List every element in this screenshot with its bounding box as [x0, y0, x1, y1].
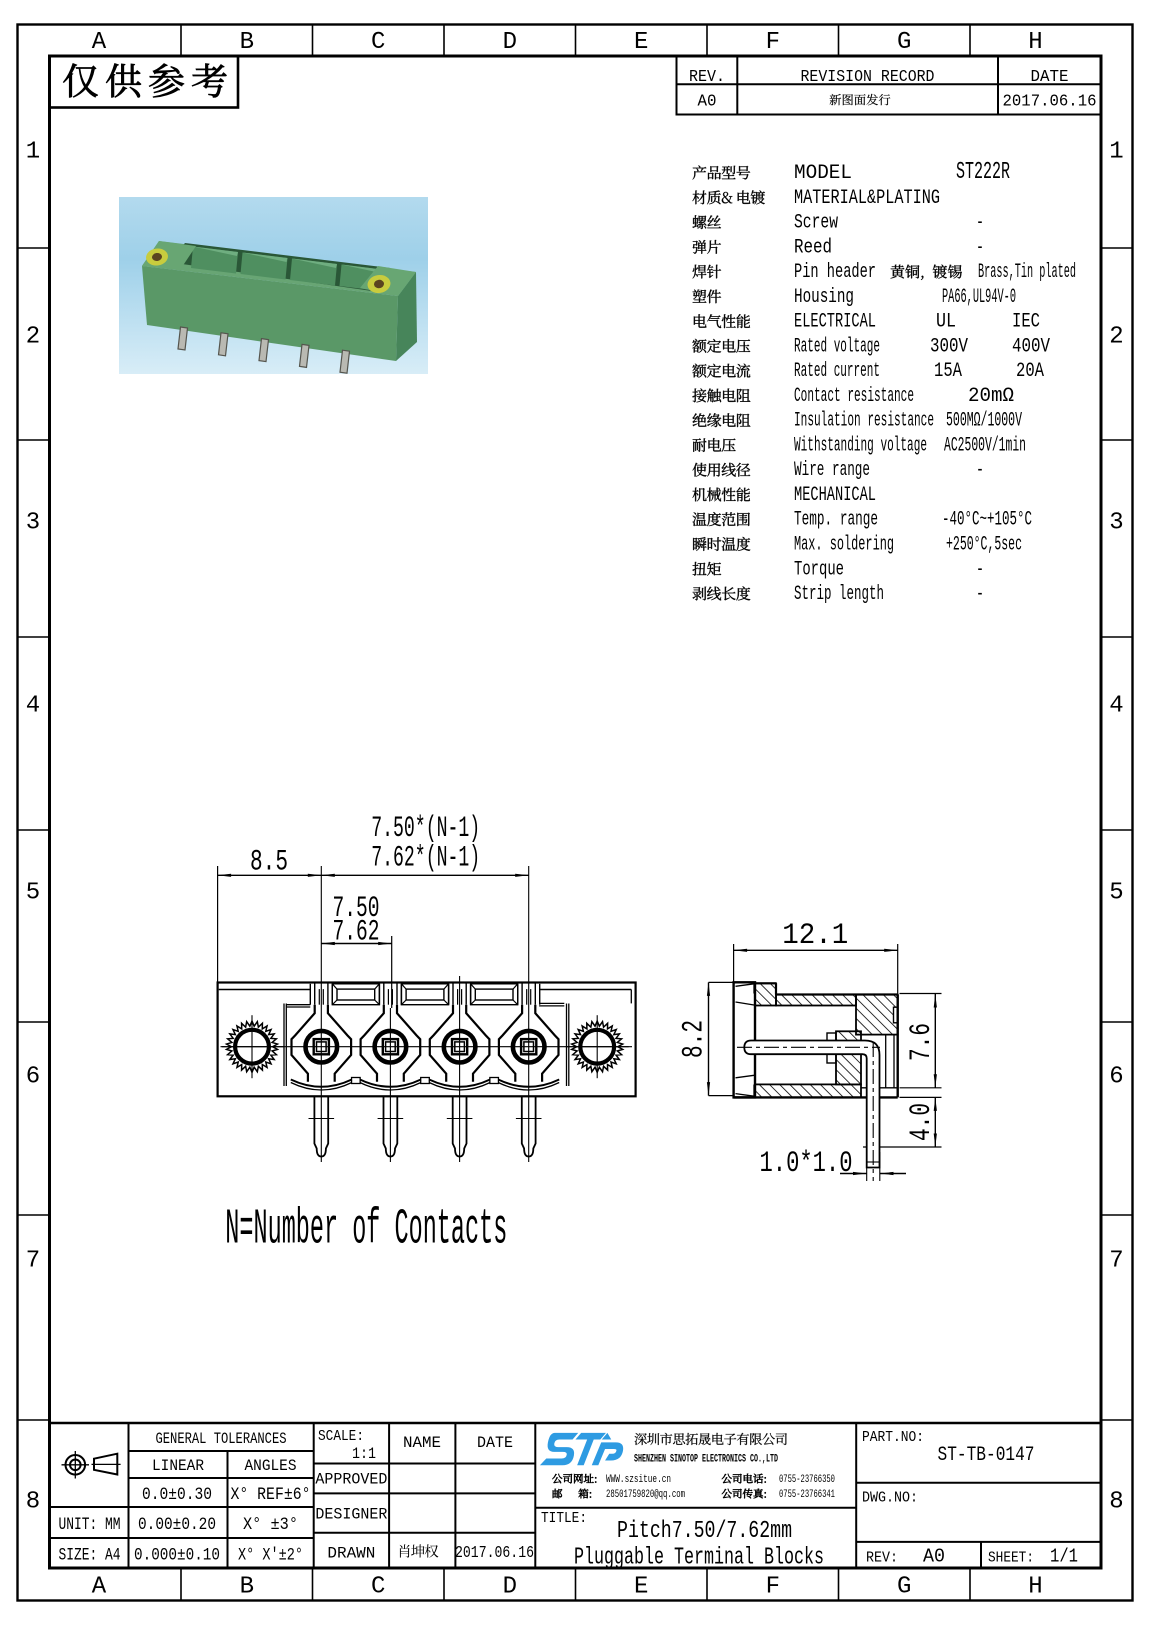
svg-text:-40°C~+105°C: -40°C~+105°C	[942, 509, 1032, 532]
svg-text:ELECTRICAL: ELECTRICAL	[794, 311, 876, 334]
svg-text:N=Number of Contacts: N=Number of Contacts	[225, 1201, 507, 1258]
svg-text:ST-TB-0147: ST-TB-0147	[938, 1444, 1035, 1467]
svg-text:20mΩ: 20mΩ	[968, 385, 1014, 408]
svg-text:0755-23766341: 0755-23766341	[779, 1489, 835, 1501]
svg-text:ST222R: ST222R	[956, 159, 1010, 186]
svg-text:PA66,UL94V-0: PA66,UL94V-0	[942, 286, 1016, 309]
svg-text:300V: 300V	[930, 335, 968, 358]
svg-text:12.1: 12.1	[782, 919, 848, 953]
svg-text:-: -	[976, 212, 984, 235]
svg-text:Max. soldering: Max. soldering	[794, 534, 894, 557]
svg-text:Rated voltage: Rated voltage	[794, 335, 880, 358]
svg-text:UL: UL	[936, 311, 956, 334]
svg-text:6: 6	[26, 1064, 40, 1091]
svg-text:G: G	[897, 29, 911, 56]
svg-text:4.0: 4.0	[905, 1103, 939, 1141]
svg-text:Temp. range: Temp. range	[794, 509, 878, 532]
svg-text:X° ±3°: X° ±3°	[243, 1515, 298, 1535]
svg-text:-: -	[976, 558, 984, 581]
svg-text:8.2: 8.2	[678, 1020, 712, 1058]
svg-text:0.00±0.20: 0.00±0.20	[138, 1515, 216, 1535]
svg-text:1: 1	[1109, 139, 1123, 166]
svg-text:APPROVED: APPROVED	[315, 1471, 387, 1489]
svg-text:SHENZHEN SINOTOP ELECTRONICS C: SHENZHEN SINOTOP ELECTRONICS CO.,LTD	[634, 1454, 778, 1466]
svg-text:MODEL: MODEL	[794, 162, 852, 185]
svg-text:1/1: 1/1	[1050, 1546, 1078, 1568]
svg-text:F: F	[766, 1574, 780, 1601]
svg-text:AC2500V/1min: AC2500V/1min	[944, 434, 1026, 457]
svg-text:C: C	[371, 1574, 385, 1601]
svg-text:A0: A0	[923, 1546, 945, 1568]
svg-text:2: 2	[1109, 324, 1123, 351]
svg-text:G: G	[897, 1574, 911, 1601]
svg-text:0.0±0.30: 0.0±0.30	[142, 1485, 212, 1505]
svg-text:A0: A0	[698, 93, 717, 112]
svg-text:F: F	[766, 29, 780, 56]
svg-text:UNIT: MM: UNIT: MM	[59, 1515, 121, 1535]
svg-text:MATERIAL&PLATING: MATERIAL&PLATING	[794, 187, 940, 210]
svg-text:Strip length: Strip length	[794, 583, 884, 606]
svg-text:WWW.szsitue.cn: WWW.szsitue.cn	[606, 1474, 671, 1486]
svg-text:DATE: DATE	[477, 1434, 513, 1452]
svg-text:7.6: 7.6	[905, 1023, 939, 1061]
svg-text:4: 4	[1109, 693, 1123, 720]
svg-text:B: B	[240, 1574, 254, 1601]
svg-text:-: -	[976, 583, 984, 606]
svg-text:15A: 15A	[934, 360, 962, 383]
svg-text:Reed: Reed	[794, 236, 832, 259]
svg-text:H: H	[1028, 29, 1042, 56]
svg-text:Pin header: Pin header	[794, 261, 876, 284]
svg-text:DRAWN: DRAWN	[327, 1545, 375, 1563]
svg-text:Rated current: Rated current	[794, 360, 880, 383]
svg-text:DATE: DATE	[1031, 68, 1069, 87]
svg-text:400V: 400V	[1012, 335, 1050, 358]
svg-text:D: D	[503, 29, 517, 56]
svg-text:X° X'±2°: X° X'±2°	[238, 1546, 303, 1566]
svg-text:8.5: 8.5	[250, 846, 288, 880]
svg-text:REV.: REV.	[689, 68, 725, 87]
svg-text:2: 2	[26, 324, 40, 351]
svg-text:1.0*1.0: 1.0*1.0	[760, 1147, 853, 1181]
svg-text:Brass,Tin plated: Brass,Tin plated	[978, 261, 1076, 284]
svg-text:8: 8	[1109, 1489, 1123, 1516]
svg-text:DWG.NO:: DWG.NO:	[862, 1490, 918, 1507]
svg-text:2017.06.16: 2017.06.16	[455, 1543, 534, 1562]
svg-text:A: A	[92, 29, 107, 56]
svg-text:Withstanding voltage: Withstanding voltage	[794, 434, 927, 457]
svg-text:Pitch7.50/7.62mm: Pitch7.50/7.62mm	[617, 1518, 792, 1545]
svg-text:20A: 20A	[1016, 360, 1044, 383]
svg-text:Torque: Torque	[794, 558, 844, 581]
svg-text:SIZE: A4: SIZE: A4	[59, 1546, 121, 1566]
svg-text:5: 5	[1109, 880, 1123, 907]
svg-text:8: 8	[26, 1489, 40, 1516]
svg-text:Insulation resistance: Insulation resistance	[794, 410, 934, 433]
svg-text:-: -	[976, 459, 984, 482]
svg-text:Pluggable Terminal Blocks: Pluggable Terminal Blocks	[574, 1545, 824, 1572]
svg-text:IEC: IEC	[1012, 311, 1040, 334]
svg-text:7.62*(N-1): 7.62*(N-1)	[371, 842, 480, 876]
svg-text:A: A	[92, 1574, 107, 1601]
svg-text:3: 3	[1109, 510, 1123, 537]
svg-text:PART.NO:: PART.NO:	[862, 1429, 924, 1446]
svg-text:0.000±0.10: 0.000±0.10	[134, 1546, 220, 1566]
svg-text:1:1: 1:1	[352, 1445, 376, 1463]
svg-text:NAME: NAME	[403, 1434, 441, 1452]
svg-text:E: E	[634, 29, 648, 56]
svg-text:500MΩ/1000V: 500MΩ/1000V	[946, 410, 1022, 433]
svg-text:Wire range: Wire range	[794, 459, 870, 482]
svg-text:7: 7	[26, 1248, 40, 1275]
svg-text:0755-23766350: 0755-23766350	[779, 1474, 835, 1486]
svg-text:7: 7	[1109, 1248, 1123, 1275]
svg-text:Housing: Housing	[794, 286, 854, 309]
svg-text:SCALE:: SCALE:	[318, 1428, 364, 1445]
svg-text:6: 6	[1109, 1064, 1123, 1091]
svg-text:Screw: Screw	[794, 212, 838, 235]
svg-text:7.62: 7.62	[333, 916, 380, 950]
svg-text:3: 3	[26, 510, 40, 537]
svg-text:REVISION RECORD: REVISION RECORD	[801, 68, 935, 87]
svg-text:MECHANICAL: MECHANICAL	[794, 484, 876, 507]
svg-text:TITLE:: TITLE:	[541, 1510, 587, 1527]
svg-text:B: B	[240, 29, 254, 56]
svg-text:GENERAL TOLERANCES: GENERAL TOLERANCES	[156, 1430, 287, 1448]
svg-text:H: H	[1028, 1574, 1042, 1601]
svg-text:E: E	[634, 1574, 648, 1601]
svg-text:REV:: REV:	[866, 1550, 898, 1567]
svg-text:1: 1	[26, 139, 40, 166]
svg-text:28501759820@qq.com: 28501759820@qq.com	[606, 1489, 685, 1501]
svg-text:SHEET:: SHEET:	[988, 1550, 1034, 1567]
svg-text:Contact resistance: Contact resistance	[794, 385, 914, 408]
svg-text:-: -	[976, 236, 984, 259]
svg-text:2017.06.16: 2017.06.16	[1003, 93, 1097, 112]
svg-text:+250°C,5sec: +250°C,5sec	[946, 534, 1022, 557]
svg-text:DESIGNER: DESIGNER	[315, 1506, 387, 1524]
svg-text:ANGLES: ANGLES	[245, 1457, 297, 1475]
svg-text:X° REF±6°: X° REF±6°	[231, 1485, 311, 1505]
svg-text:C: C	[371, 29, 385, 56]
svg-text:LINEAR: LINEAR	[152, 1457, 204, 1475]
svg-text:D: D	[503, 1574, 517, 1601]
svg-text:4: 4	[26, 693, 40, 720]
svg-text:5: 5	[26, 880, 40, 907]
